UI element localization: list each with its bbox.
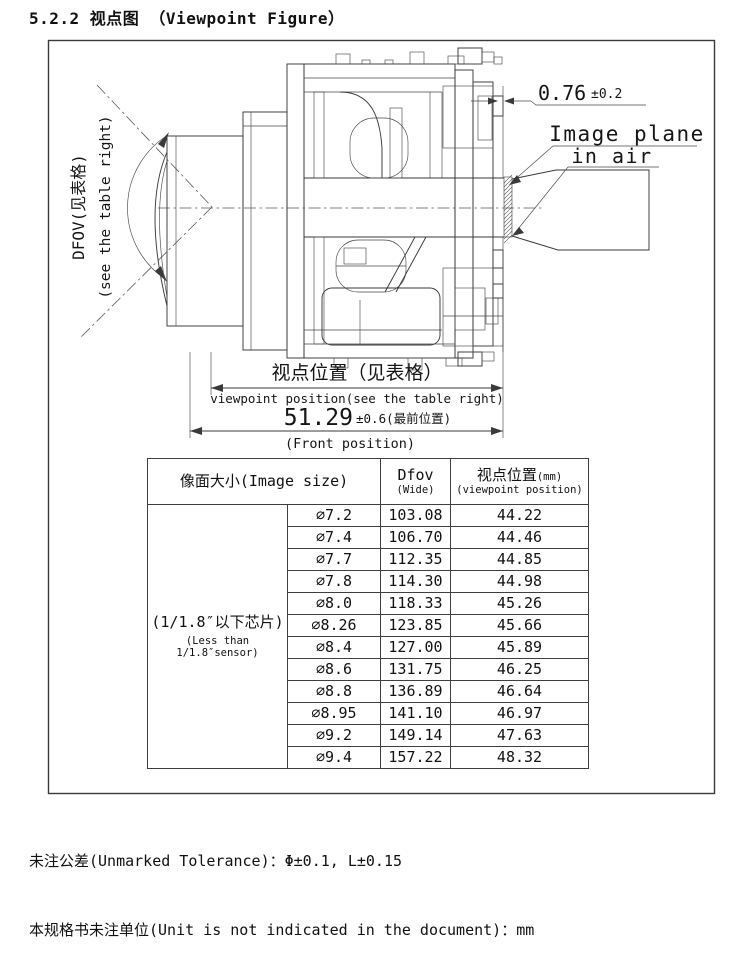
cell-viewpoint: 48.32	[451, 747, 589, 769]
cell-dfov: 127.00	[381, 637, 451, 659]
cell-viewpoint: 46.64	[451, 681, 589, 703]
dfov-label-en: (see the table right)	[98, 115, 114, 298]
connector-shaft	[512, 170, 649, 250]
cell-dfov: 103.08	[381, 505, 451, 527]
cell-size: ∅7.7	[288, 549, 381, 571]
cell-size: ∅8.95	[288, 703, 381, 725]
cell-viewpoint: 46.25	[451, 659, 589, 681]
cell-dfov: 114.30	[381, 571, 451, 593]
header-image-size: 像面大小(Image size)	[148, 459, 381, 505]
note-tolerance: 未注公差(Unmarked Tolerance)：Φ±0.1, L±0.15	[29, 850, 534, 873]
dfov-label-cn: DFOV(见表格)	[69, 154, 88, 260]
cell-viewpoint: 45.26	[451, 593, 589, 615]
housing-front-plate	[287, 64, 304, 358]
cell-viewpoint: 47.63	[451, 725, 589, 747]
cell-size: ∅8.6	[288, 659, 381, 681]
fov-arc	[127, 135, 168, 279]
cell-dfov: 106.70	[381, 527, 451, 549]
cell-dfov: 118.33	[381, 593, 451, 615]
cell-size: ∅8.4	[288, 637, 381, 659]
front-dimension-value: 51.29	[284, 405, 353, 431]
cell-viewpoint: 44.22	[451, 505, 589, 527]
lens-front-surface	[155, 152, 167, 306]
viewpoint-table: 像面大小(Image size) Dfov (Wide) 视点位置(mm) (v…	[147, 458, 589, 769]
viewpoint-dimension-cn: 视点位置（见表格）	[271, 362, 442, 384]
cell-dfov: 141.10	[381, 703, 451, 725]
cell-size: ∅8.8	[288, 681, 381, 703]
cell-dfov: 131.75	[381, 659, 451, 681]
cell-size: ∅7.8	[288, 571, 381, 593]
rear-plate-outer	[473, 82, 493, 346]
lens-holder	[167, 136, 243, 326]
footer-notes: 未注公差(Unmarked Tolerance)：Φ±0.1, L±0.15 本…	[29, 804, 534, 965]
cell-size: ∅7.2	[288, 505, 381, 527]
front-dimension-suffix: ±0.6(最前位置)	[356, 411, 451, 426]
lens-barrel	[243, 112, 287, 350]
cell-size: ∅7.4	[288, 527, 381, 549]
cell-viewpoint: 44.46	[451, 527, 589, 549]
header-viewpoint: 视点位置(mm) (viewpoint position)	[451, 459, 589, 505]
note-unit: 本规格书未注单位(Unit is not indicated in the do…	[29, 919, 534, 942]
cell-viewpoint: 45.89	[451, 637, 589, 659]
cell-viewpoint: 44.85	[451, 549, 589, 571]
cell-dfov: 136.89	[381, 681, 451, 703]
cell-size: ∅9.2	[288, 725, 381, 747]
image-plane-hatch	[504, 175, 512, 243]
table-row: (1/1.8″以下芯片) (Less than 1/1.8″sensor) ∅7…	[148, 505, 589, 527]
cell-dfov: 157.22	[381, 747, 451, 769]
front-dimension-en: (Front position)	[285, 436, 415, 452]
cell-size: ∅8.26	[288, 615, 381, 637]
cell-dfov: 123.85	[381, 615, 451, 637]
image-plane-label-line2: in air	[571, 144, 652, 168]
cell-dfov: 112.35	[381, 549, 451, 571]
viewpoint-dimension-en: viewpoint position(see the table right)	[210, 391, 504, 406]
rear-plate-inner	[455, 70, 473, 358]
gap-dimension-value: 0.76	[538, 81, 586, 105]
central-bore	[304, 178, 504, 237]
housing-body	[304, 64, 455, 358]
cell-viewpoint: 46.97	[451, 703, 589, 725]
table-header-row: 像面大小(Image size) Dfov (Wide) 视点位置(mm) (v…	[148, 459, 589, 505]
cell-dfov: 149.14	[381, 725, 451, 747]
image-plane-label-line1: Image plane	[549, 122, 705, 146]
cell-size: ∅9.4	[288, 747, 381, 769]
cell-viewpoint: 45.66	[451, 615, 589, 637]
header-dfov: Dfov (Wide)	[381, 459, 451, 505]
gap-dimension-tolerance: ±0.2	[591, 87, 622, 102]
cell-viewpoint: 44.98	[451, 571, 589, 593]
cell-size: ∅8.0	[288, 593, 381, 615]
sensor-group-cell: (1/1.8″以下芯片) (Less than 1/1.8″sensor)	[148, 505, 288, 769]
